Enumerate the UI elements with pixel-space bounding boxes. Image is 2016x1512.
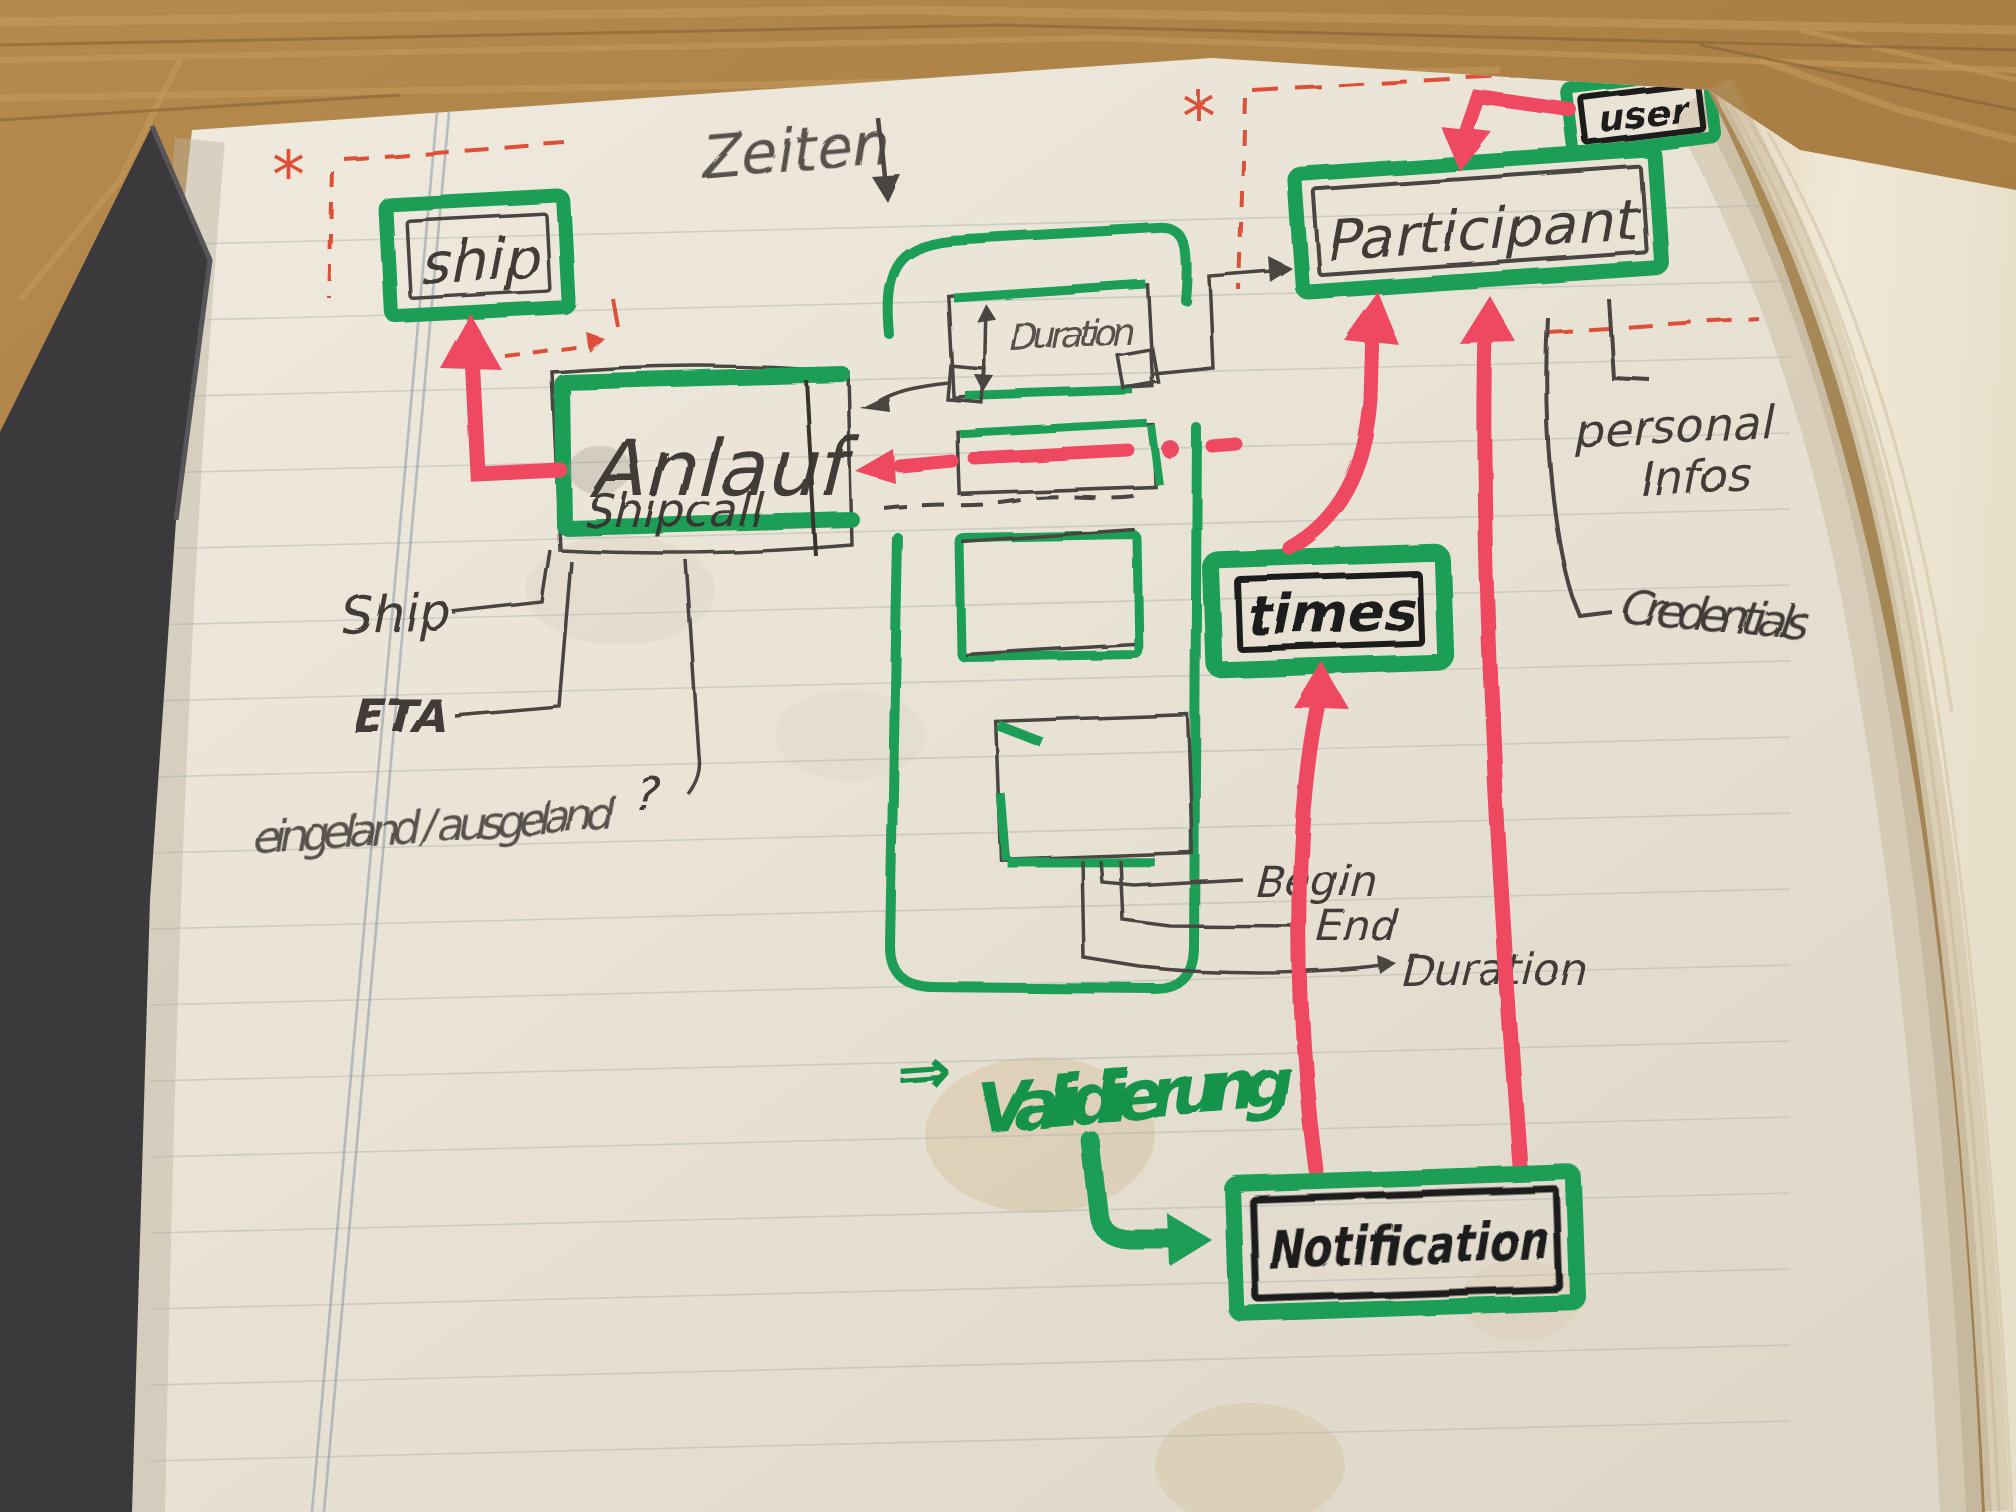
shipcall-sublabel: Shipcall [582, 484, 767, 538]
ship-attr-label: Ship [337, 582, 452, 646]
personal-infos-line2: Infos [1637, 447, 1754, 507]
ship-label: ship [416, 223, 542, 297]
duration-label: Duration [1005, 310, 1135, 360]
duration-attr-label: Duration [1398, 945, 1587, 995]
times-label: times [1242, 579, 1416, 648]
end-attr-label: End [1313, 901, 1399, 951]
asterisk-right: * [1182, 77, 1216, 156]
slot-box-3-green-left [1000, 793, 1005, 859]
notebook-photo: * ship Zeiten Duration [0, 0, 2016, 1512]
notebook-page [122, 58, 1982, 1512]
double-arrow-icon: ⇒ [894, 1032, 955, 1113]
notification-label: Notification [1264, 1209, 1550, 1282]
eta-attr-label: ETA [350, 689, 445, 743]
begin-attr-label: Begin [1252, 856, 1376, 906]
asterisk-left: * [272, 137, 305, 214]
